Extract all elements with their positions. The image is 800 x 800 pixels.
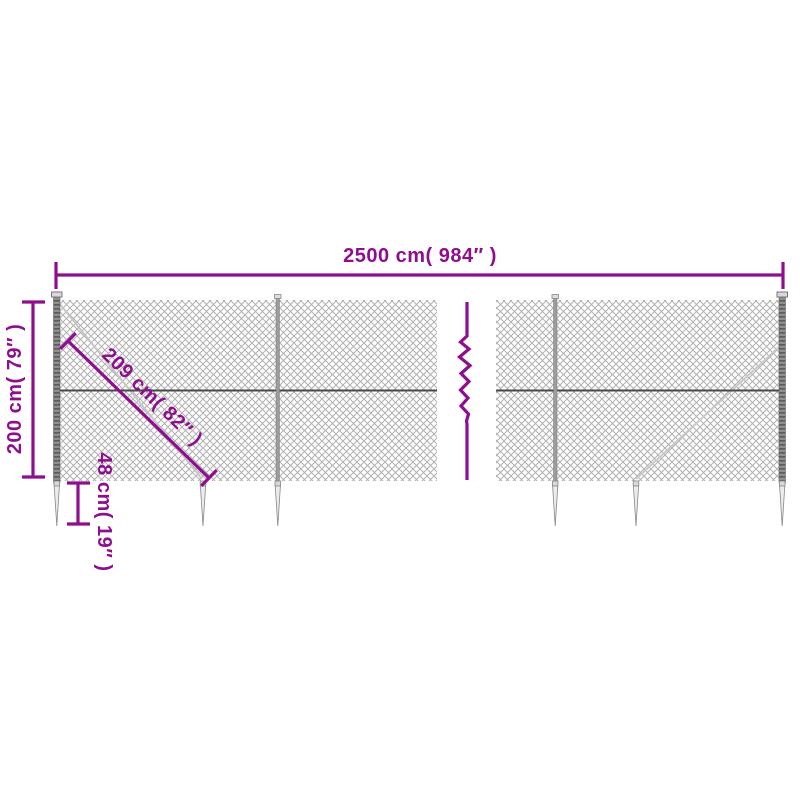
ground-spike <box>552 481 558 526</box>
break-line <box>460 302 471 480</box>
corner-post-right-cap <box>777 292 788 297</box>
product-dimension-diagram: 2500 cm( 984″ ) 200 cm( 79″ ) 209 cm( 82… <box>0 0 800 800</box>
height-label: 200 cm( 79″ ) <box>5 324 25 455</box>
intermediate-post-left <box>276 298 280 481</box>
ground-spike <box>633 481 639 526</box>
corner-post-left <box>54 296 61 483</box>
intermediate-post-left-cap <box>275 295 282 299</box>
corner-post-left-cap <box>52 292 63 297</box>
total-width-label: 2500 cm( 984″ ) <box>343 246 497 266</box>
intermediate-post-right <box>554 298 558 481</box>
intermediate-post-right-cap <box>552 295 559 299</box>
dimension-anchor-depth <box>67 483 90 524</box>
ground-spike <box>200 481 206 526</box>
fence-diagram-svg <box>0 0 800 800</box>
anchor-depth-label: 48 cm( 19″ ) <box>94 453 114 572</box>
ground-spike <box>779 481 785 526</box>
corner-post-right <box>779 296 786 483</box>
ground-spike <box>54 481 60 526</box>
ground-spike <box>275 481 281 526</box>
